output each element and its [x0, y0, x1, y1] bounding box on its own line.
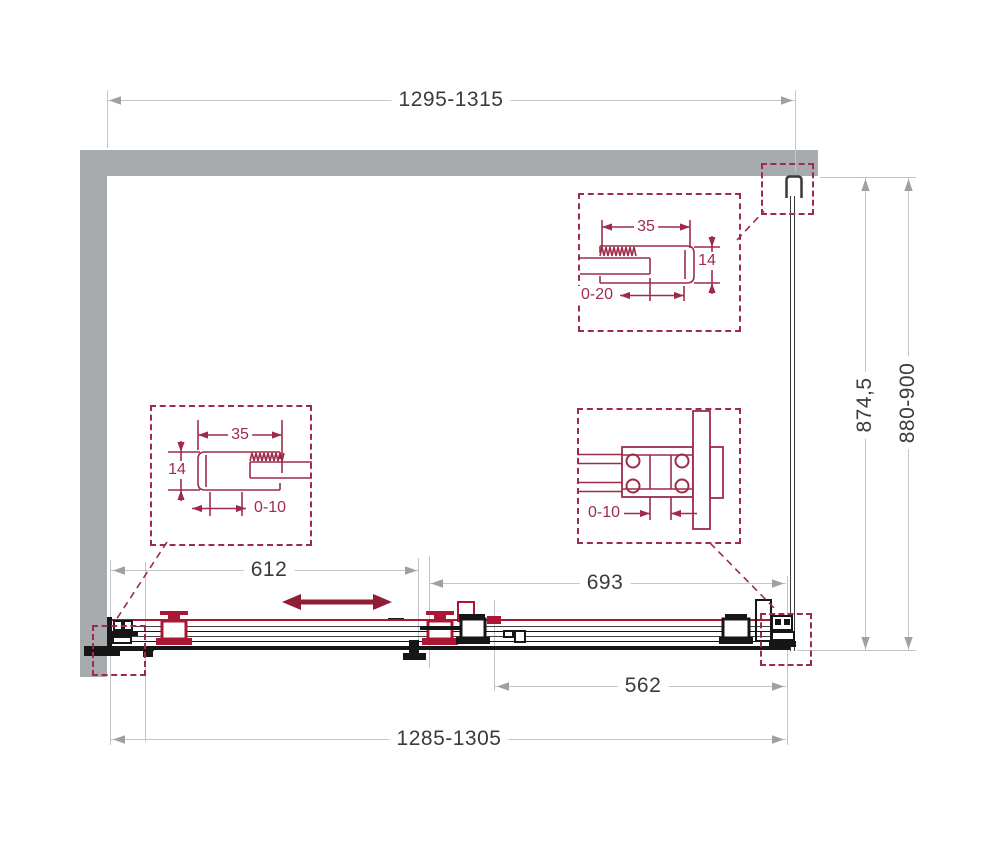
dim-fixed-section: 693 [580, 571, 631, 595]
detail-top-profile-depth: 14 [695, 252, 719, 270]
detail-bracket-adjustment: 0-10 [585, 504, 623, 522]
dim-height-total: 880-900 [896, 357, 920, 450]
callout-box-wall-joint [761, 163, 814, 215]
roller-black-right [719, 614, 753, 644]
dim-height-glass: 874,5 [853, 371, 877, 438]
detail-left-profile-width: 35 [228, 426, 252, 444]
dim-bottom-width: 1285-1305 [390, 727, 509, 751]
detail-top-profile-adjustment: 0-20 [578, 286, 616, 304]
detail-left-profile-depth: 14 [165, 461, 189, 479]
detail-top-profile-width: 35 [634, 218, 658, 236]
slide-direction-arrow [282, 594, 392, 610]
technical-drawing-canvas: 1295-1315 874,5 880-900 612 693 562 1285… [0, 0, 1000, 842]
detail-left-profile-adjustment: 0-10 [251, 499, 289, 517]
callout-box-track-right [760, 613, 812, 666]
callout-box-bracket-detail [577, 408, 741, 544]
callout-box-track-left [92, 625, 146, 676]
dim-top-width: 1295-1315 [392, 88, 511, 112]
roller-red-left [156, 611, 192, 645]
dim-glass-panel: 562 [618, 674, 669, 698]
glass-panel [787, 177, 802, 652]
dim-door-travel: 612 [244, 558, 295, 582]
